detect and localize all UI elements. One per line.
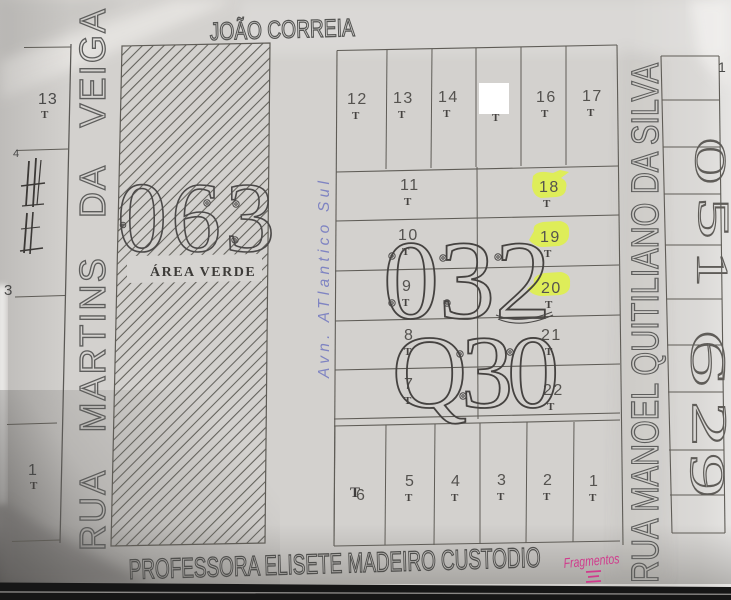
svg-text:1: 1 [688, 251, 731, 287]
svg-text:T: T [405, 492, 413, 504]
svg-text:12: 12 [347, 91, 368, 108]
svg-text:17: 17 [582, 88, 603, 105]
svg-text:RUA MARTINS DA VEIGA: RUA MARTINS DA VEIGA [72, 9, 113, 551]
svg-text:T: T [443, 108, 451, 120]
svg-text:RUA MANOEL QUITILIANO DA SILVA: RUA MANOEL QUITILIANO DA SILVA [625, 62, 667, 583]
svg-text:14: 14 [438, 89, 459, 106]
svg-text:T: T [350, 485, 360, 501]
svg-text:1: 1 [589, 473, 598, 490]
svg-text:3: 3 [4, 282, 12, 299]
svg-text:1: 1 [28, 462, 37, 479]
svg-text:T: T [404, 196, 412, 208]
svg-text:T: T [41, 109, 49, 121]
svg-text:2: 2 [682, 401, 731, 447]
svg-text:Avn. ATlantico Sul: Avn. ATlantico Sul [316, 180, 333, 379]
svg-text:T: T [541, 108, 549, 120]
svg-text:063: 063 [117, 162, 279, 273]
svg-text:T: T [30, 480, 38, 492]
svg-text:T: T [398, 109, 406, 121]
svg-text:T: T [587, 107, 595, 119]
svg-text:6: 6 [681, 329, 731, 387]
svg-text:5: 5 [689, 197, 731, 239]
svg-text:4: 4 [13, 148, 19, 160]
svg-text:5: 5 [405, 473, 414, 490]
svg-text:0: 0 [686, 137, 731, 185]
svg-text:18: 18 [539, 179, 560, 196]
svg-text:4: 4 [451, 473, 460, 490]
svg-text:9: 9 [680, 453, 731, 498]
svg-text:JOÃO CORREIA: JOÃO CORREIA [209, 13, 355, 46]
svg-text:Q30: Q30 [392, 315, 556, 430]
svg-text:T: T [589, 492, 597, 504]
svg-text:T: T [497, 491, 505, 503]
svg-text:T: T [543, 491, 551, 503]
svg-text:1: 1 [718, 59, 726, 75]
svg-text:13: 13 [393, 90, 414, 107]
svg-text:2: 2 [543, 472, 552, 489]
svg-text:T: T [451, 492, 459, 504]
svg-text:11: 11 [400, 177, 420, 194]
svg-text:13: 13 [38, 91, 58, 108]
svg-text:3: 3 [497, 472, 506, 489]
svg-text:16: 16 [536, 89, 557, 106]
svg-text:T: T [352, 110, 360, 122]
svg-text:T: T [543, 198, 551, 210]
